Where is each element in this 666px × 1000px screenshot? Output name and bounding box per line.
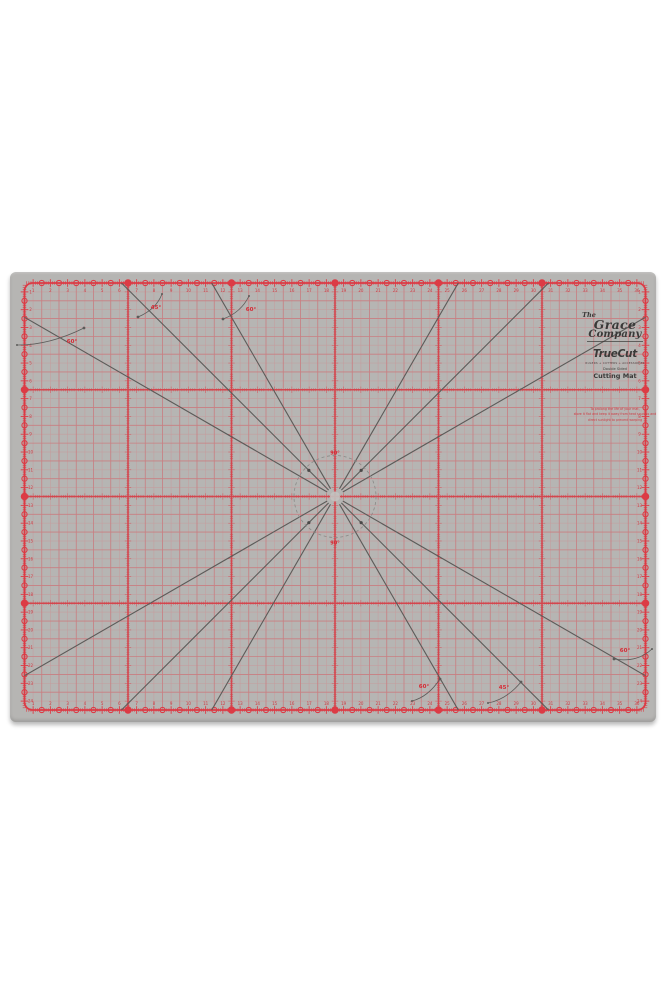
svg-text:12: 12 (220, 288, 226, 293)
svg-text:18: 18 (637, 592, 643, 597)
svg-text:10: 10 (186, 701, 192, 706)
svg-text:28: 28 (496, 701, 502, 706)
svg-text:34: 34 (600, 288, 606, 293)
svg-text:31: 31 (548, 701, 554, 706)
svg-text:11: 11 (28, 467, 34, 472)
svg-text:90°: 90° (330, 541, 340, 547)
svg-text:11: 11 (203, 701, 209, 706)
cutting-mat-label: Cutting Mat (568, 372, 662, 380)
svg-text:34: 34 (600, 701, 606, 706)
svg-text:12: 12 (637, 485, 643, 490)
svg-text:1: 1 (32, 288, 35, 293)
svg-text:33: 33 (583, 701, 589, 706)
svg-text:23: 23 (410, 701, 416, 706)
svg-text:22: 22 (28, 663, 34, 668)
svg-text:6: 6 (29, 378, 32, 383)
svg-text:32: 32 (565, 701, 571, 706)
svg-text:20: 20 (637, 627, 643, 632)
svg-text:19: 19 (341, 288, 347, 293)
svg-text:24: 24 (427, 701, 433, 706)
svg-text:23: 23 (410, 288, 416, 293)
care-line: direct sunlight to prevent warping (562, 418, 666, 423)
svg-text:5: 5 (101, 701, 104, 706)
svg-text:17: 17 (307, 288, 313, 293)
svg-text:60°: 60° (620, 648, 631, 654)
svg-text:15: 15 (28, 538, 34, 543)
care-instructions: To prolong the life of your mat, store i… (562, 407, 666, 423)
svg-text:20: 20 (358, 288, 364, 293)
svg-text:21: 21 (376, 701, 382, 706)
svg-text:90°: 90° (330, 451, 340, 457)
svg-text:19: 19 (341, 701, 347, 706)
mat-grid-graphic: 1234567891011121314151617181920212223242… (10, 272, 656, 722)
svg-text:17: 17 (28, 574, 34, 579)
svg-text:23: 23 (637, 681, 643, 686)
svg-text:6: 6 (118, 701, 121, 706)
svg-text:32: 32 (565, 288, 571, 293)
svg-text:23: 23 (28, 681, 34, 686)
svg-text:12: 12 (28, 485, 34, 490)
svg-text:2: 2 (49, 288, 52, 293)
svg-text:4: 4 (84, 288, 87, 293)
svg-text:20: 20 (358, 701, 364, 706)
svg-text:3: 3 (29, 325, 32, 330)
svg-text:1: 1 (638, 289, 641, 294)
svg-text:60°: 60° (67, 339, 78, 345)
svg-text:12: 12 (220, 701, 226, 706)
svg-text:18: 18 (324, 288, 330, 293)
double-sided-label: Double Sided (568, 368, 662, 372)
svg-text:11: 11 (203, 288, 209, 293)
svg-text:60°: 60° (419, 684, 430, 690)
brand-block: The Grace Company TrueCut RULERS + CUTTE… (568, 311, 662, 380)
svg-text:14: 14 (255, 288, 261, 293)
svg-text:2: 2 (49, 701, 52, 706)
svg-text:14: 14 (255, 701, 261, 706)
svg-text:15: 15 (637, 538, 643, 543)
svg-text:27: 27 (479, 288, 485, 293)
svg-text:26: 26 (462, 288, 468, 293)
svg-text:35: 35 (617, 701, 623, 706)
svg-text:17: 17 (307, 701, 313, 706)
cutting-mat: 1234567891011121314151617181920212223242… (10, 272, 656, 722)
svg-text:9: 9 (638, 432, 641, 437)
svg-text:16: 16 (289, 701, 295, 706)
svg-text:14: 14 (28, 521, 34, 526)
svg-text:13: 13 (637, 503, 643, 508)
svg-text:21: 21 (376, 288, 382, 293)
svg-text:13: 13 (238, 288, 244, 293)
svg-text:7: 7 (135, 288, 138, 293)
svg-text:10: 10 (637, 450, 643, 455)
svg-text:14: 14 (637, 521, 643, 526)
svg-text:13: 13 (28, 503, 34, 508)
svg-text:5: 5 (101, 288, 104, 293)
svg-text:45°: 45° (499, 685, 510, 691)
svg-text:30: 30 (531, 701, 537, 706)
svg-text:30: 30 (531, 288, 537, 293)
svg-text:8: 8 (153, 701, 156, 706)
svg-text:33: 33 (583, 288, 589, 293)
svg-text:24: 24 (637, 699, 643, 704)
svg-text:18: 18 (324, 701, 330, 706)
svg-text:16: 16 (289, 288, 295, 293)
svg-text:9: 9 (170, 288, 173, 293)
svg-text:10: 10 (186, 288, 192, 293)
svg-text:9: 9 (29, 432, 32, 437)
logo-company: Company (568, 329, 662, 340)
svg-text:29: 29 (514, 701, 520, 706)
svg-text:31: 31 (548, 288, 554, 293)
svg-text:13: 13 (238, 701, 244, 706)
svg-text:4: 4 (84, 701, 87, 706)
svg-text:20: 20 (28, 627, 34, 632)
care-line: store it flat and keep it away from heat… (562, 412, 666, 417)
svg-text:28: 28 (496, 288, 502, 293)
svg-text:45°: 45° (151, 305, 162, 311)
svg-text:6: 6 (118, 288, 121, 293)
svg-text:26: 26 (462, 701, 468, 706)
svg-text:5: 5 (29, 361, 32, 366)
svg-text:60°: 60° (246, 307, 257, 313)
svg-text:22: 22 (637, 663, 643, 668)
svg-text:11: 11 (637, 467, 643, 472)
svg-text:19: 19 (28, 610, 34, 615)
svg-text:2: 2 (29, 307, 32, 312)
svg-text:17: 17 (637, 574, 643, 579)
svg-text:3: 3 (66, 701, 69, 706)
truecut-tagline: RULERS + CUTTERS + ACCESSORIES (568, 362, 662, 365)
svg-text:35: 35 (617, 288, 623, 293)
svg-text:29: 29 (514, 288, 520, 293)
svg-text:19: 19 (637, 610, 643, 615)
svg-text:15: 15 (272, 288, 278, 293)
svg-text:15: 15 (272, 701, 278, 706)
svg-text:9: 9 (170, 701, 173, 706)
svg-text:16: 16 (28, 556, 34, 561)
product-photo: 1234567891011121314151617181920212223242… (0, 0, 666, 1000)
svg-text:24: 24 (28, 699, 34, 704)
svg-text:1: 1 (29, 289, 32, 294)
svg-text:27: 27 (479, 701, 485, 706)
svg-text:8: 8 (153, 288, 156, 293)
svg-text:22: 22 (393, 701, 399, 706)
svg-text:3: 3 (66, 288, 69, 293)
svg-text:22: 22 (393, 288, 399, 293)
grace-company-logo: The Grace Company (568, 311, 662, 342)
svg-text:8: 8 (29, 414, 32, 419)
svg-text:4: 4 (29, 343, 32, 348)
svg-text:7: 7 (638, 396, 641, 401)
svg-text:7: 7 (135, 701, 138, 706)
svg-text:21: 21 (637, 645, 643, 650)
svg-text:18: 18 (28, 592, 34, 597)
truecut-wordmark: TrueCut (568, 348, 662, 360)
svg-text:21: 21 (28, 645, 34, 650)
svg-text:10: 10 (28, 450, 34, 455)
svg-text:24: 24 (427, 288, 433, 293)
logo-flourish (587, 341, 643, 342)
svg-text:16: 16 (637, 556, 643, 561)
svg-text:25: 25 (445, 701, 451, 706)
svg-text:25: 25 (445, 288, 451, 293)
svg-text:7: 7 (29, 396, 32, 401)
